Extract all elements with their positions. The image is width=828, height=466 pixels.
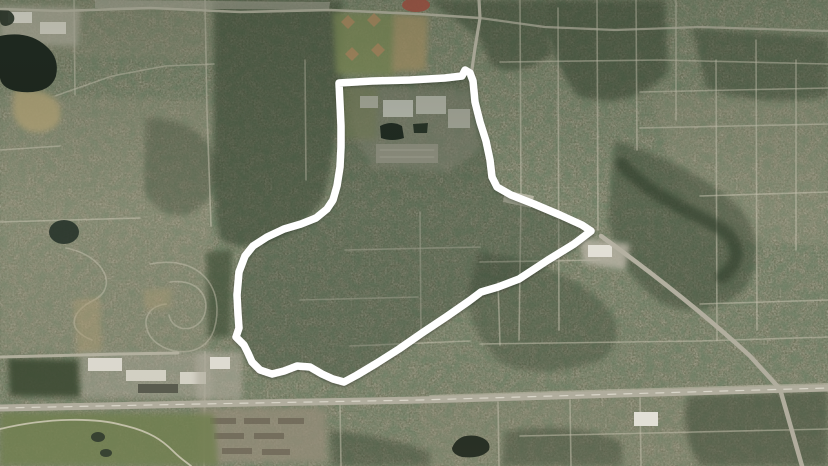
satellite-map-screenshot bbox=[0, 0, 828, 466]
map-svg bbox=[0, 0, 828, 466]
